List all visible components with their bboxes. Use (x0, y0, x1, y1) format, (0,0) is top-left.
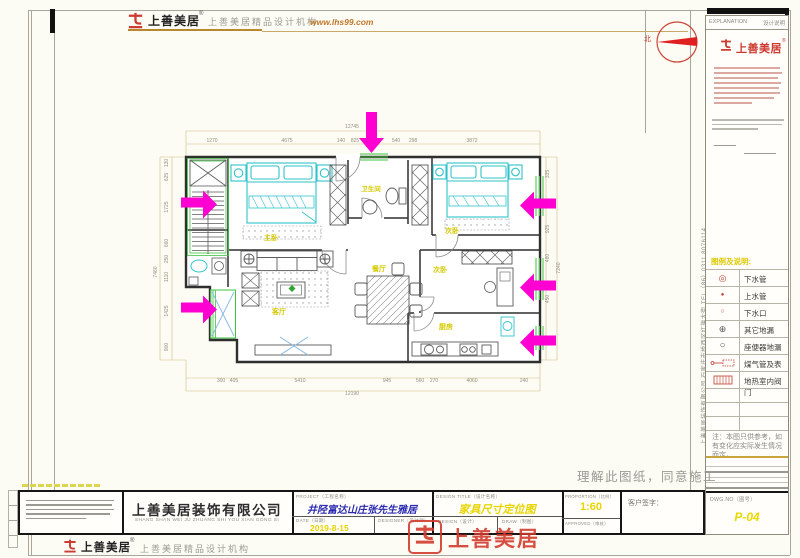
hatched-box-icon (706, 372, 740, 388)
dim: 3872 (466, 138, 477, 144)
explanation-panel: EXPLANATION 设计说明 上善美居 ® 图例及说明: ◎ 下水管 (705, 15, 789, 535)
legend-label: 其它地漏 (744, 325, 774, 336)
small-circle-icon: ○ (706, 304, 740, 320)
legend-row: 地热室内阀门 (706, 372, 788, 389)
client-sign-label: 客户签字： (628, 498, 663, 508)
circle-icon: ○ (706, 338, 740, 354)
legend-row-empty (706, 417, 788, 431)
dwg-no-label: DWG.NO（图号） (710, 496, 756, 503)
dim-right-total: 7240 (556, 262, 562, 273)
legend-label: 下水口 (744, 308, 767, 319)
legend-row-empty (706, 389, 788, 403)
dim: 405 (230, 378, 239, 384)
sidebar-logo-icon (719, 38, 733, 52)
wardrobe-left (330, 165, 346, 225)
footer-logo-icon (62, 538, 78, 554)
agree-note: 理解此图纸，同意施工 (577, 466, 717, 485)
dim: 270 (430, 378, 439, 384)
yellow-micro-note (22, 484, 172, 487)
drawing-sheet: 上善美居 ® 上善美居精品设计机构 www.lhs99.com 北 (0, 0, 800, 558)
title-block: 上善美居装饰有限公司 SHANG SHAN WEI JU ZHUANG SHI … (18, 490, 705, 535)
crossed-circle-icon: ⊕ (706, 321, 740, 337)
legend-label: 座便器地漏 (744, 342, 782, 353)
dim: 1270 (206, 138, 217, 144)
legend-row: ◎ 下水管 (706, 270, 788, 287)
dim: 450 (545, 295, 551, 304)
sidebar-brand: 上善美居 (736, 40, 782, 56)
design-title-label: DESIGN.TITLE（设计名称） (436, 494, 500, 500)
remarks-cell (26, 497, 116, 519)
scale-value: 1:60 (562, 501, 620, 513)
dim: 900 (164, 343, 170, 352)
legend-row-empty (706, 403, 788, 417)
company-pinyin: SHANG SHAN WEI JU ZHUANG SHI YOU XIAN GO… (122, 518, 292, 523)
company-name: 上善美居装饰有限公司 (122, 499, 292, 519)
date-value: 2019-8-15 (310, 523, 349, 533)
legend-table: ◎ 下水管 ● 上水管 ○ 下水口 ⊕ 其它地漏 ○ 座便器地漏 (706, 269, 788, 431)
dim: 5410 (294, 378, 305, 384)
dim: 300 (217, 378, 226, 384)
stamp-text: 上善美居 (448, 523, 540, 553)
dim: 825 (351, 138, 360, 144)
project-name: 井陉富达山庄张先生雅居 (292, 501, 432, 516)
dim: 925 (545, 225, 551, 234)
legend-row: ○ 座便器地漏 (706, 338, 788, 355)
stamp-box (408, 520, 442, 554)
signature-cell: 客户签字： (620, 492, 707, 533)
footer-brand-name: 上善美居 (81, 539, 131, 555)
legend-label: 上水管 (744, 291, 767, 302)
footer-brand-reg: ® (130, 538, 134, 544)
label-master: 主卧 (264, 233, 278, 242)
dwg-no-value: P-04 (706, 510, 788, 524)
master-rug (243, 226, 321, 239)
label-dining: 餐厅 (371, 264, 386, 273)
dim: 240 (520, 378, 529, 384)
legend-label: 下水管 (744, 274, 767, 285)
sub-divider (374, 516, 375, 533)
legend-row: ● 上水管 (706, 287, 788, 304)
dim: 945 (383, 378, 392, 384)
dim: 625 (164, 173, 170, 182)
dim: 660 (164, 239, 170, 248)
legend-row: ⊕ 其它地漏 (706, 321, 788, 338)
signature-caption (714, 142, 738, 146)
row-divider (292, 516, 432, 517)
arrow-down-top (359, 112, 384, 153)
dim: 335 (545, 170, 551, 179)
dot-icon: ● (706, 287, 740, 303)
signature-line (744, 153, 776, 154)
dim: 298 (409, 138, 418, 144)
dim: 250 (164, 255, 170, 264)
explanation-header: EXPLANATION 设计说明 (706, 16, 788, 30)
dim: 540 (392, 138, 401, 144)
label-bed3: 次卧 (433, 265, 447, 274)
dim: 560 (416, 378, 425, 384)
coffee-table (277, 282, 305, 298)
wardrobe-right (412, 165, 428, 225)
explanation-en: EXPLANATION (709, 19, 747, 25)
legend-title: 图例及说明: (711, 256, 751, 267)
dim: 4060 (466, 378, 477, 384)
legend-row: 煤气管及表 (706, 355, 788, 372)
footer-brand-band: 上善美居 ® 上善美居精品设计机构 (0, 536, 800, 558)
dim: 1425 (164, 305, 170, 316)
gas-meter-icon (706, 355, 740, 371)
double-circle-icon: ◎ (706, 270, 740, 286)
dwg-no-cell: DWG.NO（图号） P-04 (706, 491, 788, 536)
dim-top-total: 12745 (345, 124, 359, 130)
explanation-cn: 设计说明 (763, 19, 785, 27)
gray-text-block (712, 116, 784, 130)
company-cell: 上善美居装饰有限公司 SHANG SHAN WEI JU ZHUANG SHI … (122, 492, 292, 533)
gold-divider (706, 456, 788, 458)
dim-left-total: 7460 (153, 266, 159, 277)
revision-lines (706, 462, 788, 489)
dim: 140 (337, 138, 346, 144)
dim: 1110 (164, 272, 170, 283)
stamp-logo-icon (412, 524, 438, 546)
legend-label: 煤气管及表 (744, 359, 782, 370)
label-bath: 卫生间 (361, 184, 381, 193)
label-living: 客厅 (271, 307, 286, 316)
footer-tagline: 上善美居精品设计机构 (140, 542, 250, 555)
approve-label: APPROVED（审核） (565, 521, 609, 527)
scale-label: PROPORTION（比例） (565, 494, 614, 500)
dim: 4675 (281, 138, 292, 144)
dim: 1725 (164, 201, 170, 212)
scale-cell: PROPORTION（比例） 1:60 APPROVED（审核） (562, 492, 620, 533)
red-text-block (714, 64, 782, 104)
label-bed2: 次卧 (445, 226, 459, 235)
label-kitchen: 厨房 (439, 322, 453, 331)
dim: 130 (164, 159, 170, 168)
design-title: 家具尺寸定位图 (432, 501, 562, 517)
legend-row: ○ 下水口 (706, 304, 788, 321)
dim: 480 (545, 254, 551, 263)
row-divider (562, 518, 620, 519)
sidebar-brand-reg: ® (782, 38, 786, 44)
project-label: PROJECT（工程名称） (296, 494, 349, 500)
dim-bottom-total: 12190 (345, 391, 359, 397)
